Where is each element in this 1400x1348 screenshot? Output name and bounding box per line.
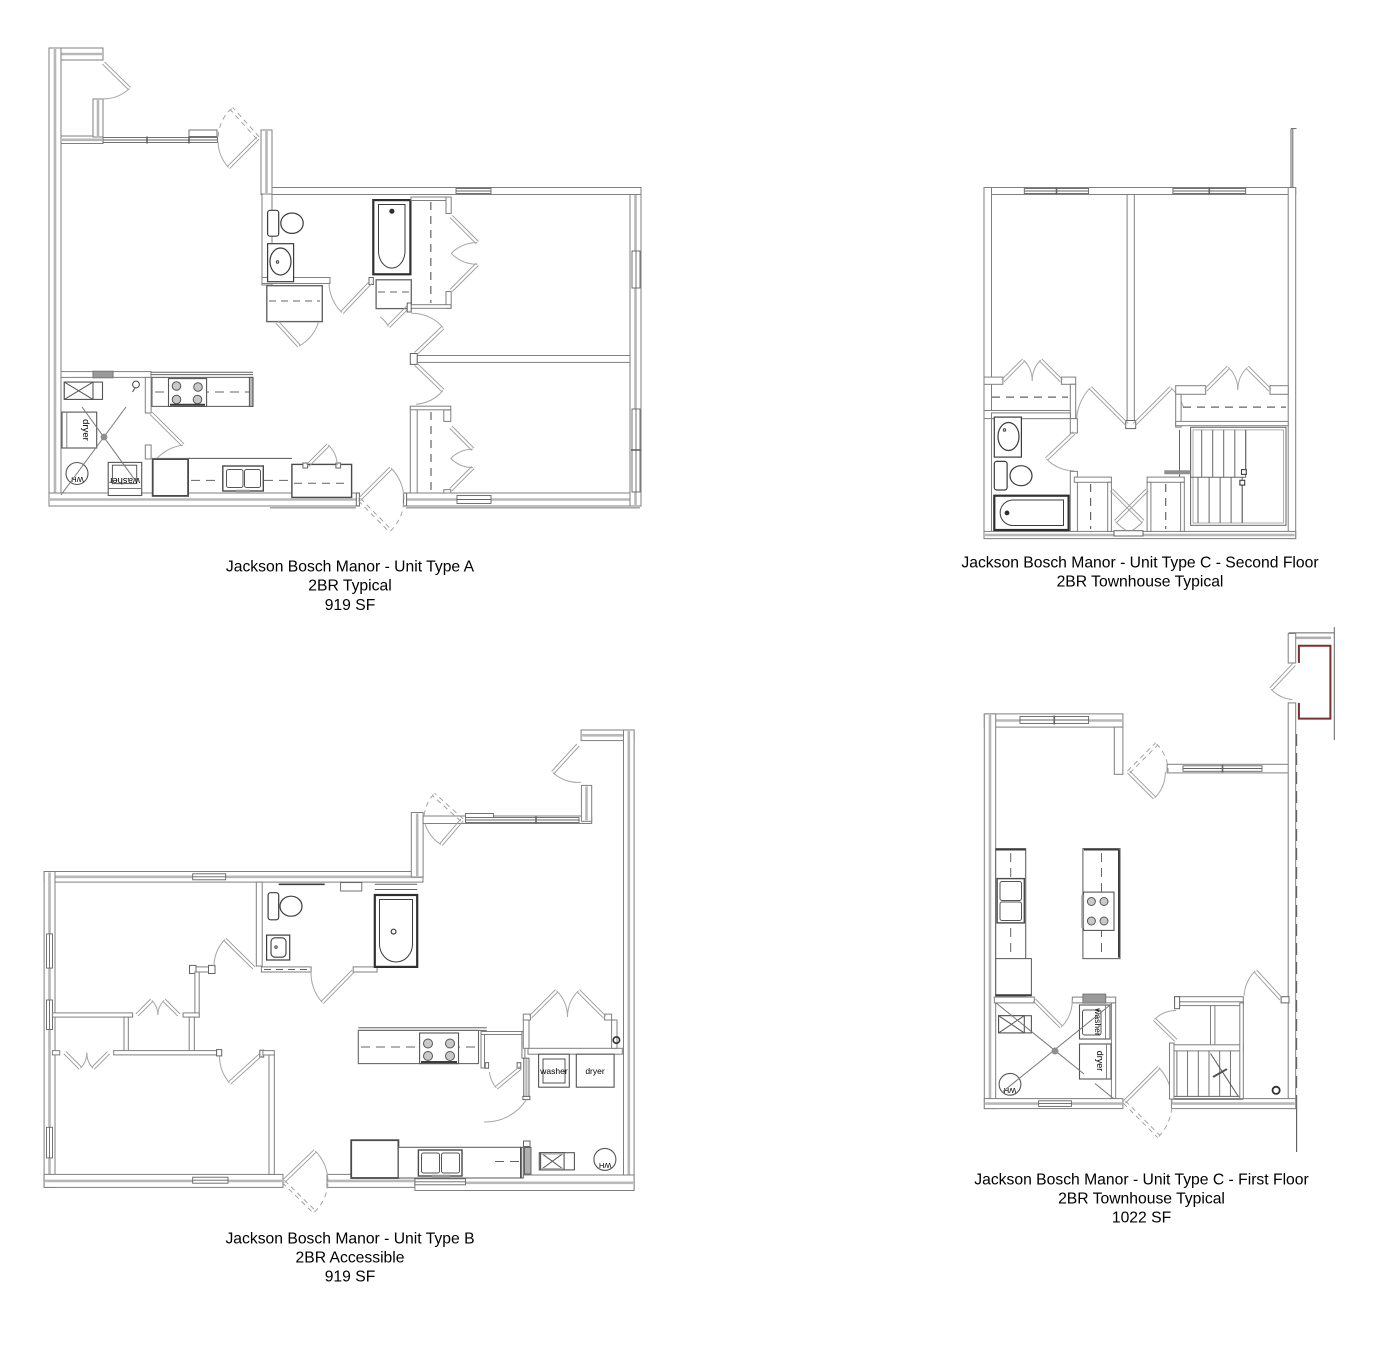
svg-text:Jackson Bosch Manor - Unit Typ: Jackson Bosch Manor - Unit Type C - Firs… [974,1171,1308,1188]
svg-text:919 SF: 919 SF [325,597,376,614]
svg-text:Jackson Bosch Manor - Unit Typ: Jackson Bosch Manor - Unit Type C - Seco… [961,555,1318,572]
svg-text:2BR Townhouse Typical: 2BR Townhouse Typical [1058,1191,1225,1208]
svg-text:Jackson Bosch Manor - Unit Typ: Jackson Bosch Manor - Unit Type B [225,1230,474,1247]
svg-text:2BR Townhouse Typical: 2BR Townhouse Typical [1057,574,1224,591]
svg-text:dryer: dryer [80,419,91,441]
svg-text:1022 SF: 1022 SF [1112,1210,1171,1227]
svg-text:washer: washer [539,1066,568,1076]
svg-text:Jackson Bosch Manor - Unit Typ: Jackson Bosch Manor - Unit Type A [226,559,475,576]
svg-text:WH: WH [1004,1086,1017,1095]
svg-text:WH: WH [599,1161,612,1170]
svg-text:dryer: dryer [1095,1051,1105,1072]
svg-text:919 SF: 919 SF [325,1269,376,1286]
svg-text:2BR Accessible: 2BR Accessible [296,1250,405,1267]
svg-text:2BR Typical: 2BR Typical [308,578,391,595]
svg-text:WH: WH [71,475,84,484]
svg-text:dryer: dryer [585,1066,605,1076]
svg-text:washer: washer [109,475,141,486]
